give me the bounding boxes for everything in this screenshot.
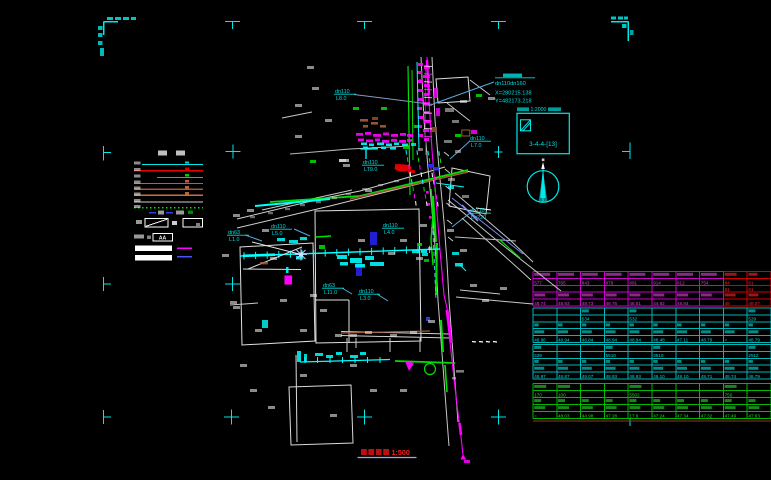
svg-text:48.76: 48.76 bbox=[606, 301, 618, 306]
svg-text:5510: 5510 bbox=[606, 353, 617, 358]
svg-text:dn110dn160: dn110dn160 bbox=[495, 81, 526, 87]
svg-text:48.73: 48.73 bbox=[582, 301, 594, 306]
svg-text:L5.0: L5.0 bbox=[272, 231, 283, 237]
svg-text:48.03: 48.03 bbox=[558, 414, 570, 419]
svg-text:47.49: 47.49 bbox=[725, 414, 737, 419]
svg-text:765: 765 bbox=[558, 280, 566, 285]
svg-text:843: 843 bbox=[582, 280, 590, 285]
svg-text:48.74: 48.74 bbox=[534, 301, 546, 306]
svg-text:48.71: 48.71 bbox=[701, 374, 713, 379]
svg-text:47.63: 47.63 bbox=[748, 414, 760, 419]
svg-text:48.07: 48.07 bbox=[748, 301, 760, 306]
svg-text:48: 48 bbox=[725, 301, 731, 306]
svg-text:=: = bbox=[534, 414, 537, 419]
svg-text:81: 81 bbox=[748, 280, 754, 285]
svg-text:1:2000: 1:2000 bbox=[531, 107, 547, 113]
svg-text:48.97: 48.97 bbox=[534, 374, 546, 379]
svg-text:754: 754 bbox=[701, 280, 709, 285]
svg-text:750: 750 bbox=[725, 392, 733, 397]
svg-text:48.93: 48.93 bbox=[558, 301, 570, 306]
svg-text:812: 812 bbox=[677, 280, 685, 285]
svg-text:48.96: 48.96 bbox=[534, 338, 546, 343]
svg-text:48.93: 48.93 bbox=[606, 374, 618, 379]
svg-text:48.79: 48.79 bbox=[748, 374, 760, 379]
svg-text:44.98: 44.98 bbox=[582, 414, 594, 419]
svg-text:47.34: 47.34 bbox=[677, 414, 689, 419]
svg-text:L8.0: L8.0 bbox=[336, 96, 347, 102]
svg-text:48.87: 48.87 bbox=[558, 374, 570, 379]
svg-text:539: 539 bbox=[534, 353, 542, 358]
svg-text:48.51: 48.51 bbox=[629, 301, 641, 306]
svg-text:47.24: 47.24 bbox=[653, 414, 665, 419]
svg-text:47.32: 47.32 bbox=[701, 414, 713, 419]
svg-text:3-4-4-[13]: 3-4-4-[13] bbox=[529, 141, 557, 148]
svg-text:5502: 5502 bbox=[629, 392, 640, 397]
svg-text:X=280215.138: X=280215.138 bbox=[495, 91, 532, 97]
svg-text:17.9: 17.9 bbox=[629, 414, 638, 419]
svg-text:48.94: 48.94 bbox=[629, 338, 641, 343]
svg-text:914: 914 bbox=[653, 280, 661, 285]
svg-text:170: 170 bbox=[534, 392, 542, 397]
svg-text:LT9.0: LT9.0 bbox=[364, 167, 377, 173]
svg-text:48.93: 48.93 bbox=[629, 374, 641, 379]
svg-text:48.07: 48.07 bbox=[582, 374, 594, 379]
svg-text:529: 529 bbox=[748, 317, 756, 322]
svg-text:84: 84 bbox=[725, 280, 731, 285]
svg-text:48.10: 48.10 bbox=[653, 374, 665, 379]
svg-text:2512: 2512 bbox=[748, 353, 759, 358]
svg-text:48.10: 48.10 bbox=[677, 374, 689, 379]
svg-text:1:500: 1:500 bbox=[392, 448, 410, 457]
svg-text:Y=482173.218: Y=482173.218 bbox=[495, 99, 532, 105]
svg-text:48.94: 48.94 bbox=[558, 338, 570, 343]
svg-text:879: 879 bbox=[606, 280, 614, 285]
svg-text:532: 532 bbox=[629, 317, 637, 322]
svg-text:48.84: 48.84 bbox=[677, 301, 689, 306]
svg-text:891: 891 bbox=[629, 280, 637, 285]
svg-text:L1.0: L1.0 bbox=[229, 237, 240, 243]
svg-text:AA: AA bbox=[159, 236, 167, 242]
svg-text:61: 61 bbox=[748, 287, 754, 292]
svg-text:L11.0: L11.0 bbox=[324, 290, 337, 296]
svg-text:48.48: 48.48 bbox=[653, 338, 665, 343]
svg-text:48.84: 48.84 bbox=[582, 338, 594, 343]
svg-text:51: 51 bbox=[725, 287, 731, 292]
svg-text:47.28: 47.28 bbox=[606, 414, 618, 419]
svg-text:=: = bbox=[725, 338, 728, 343]
svg-text:48.74: 48.74 bbox=[725, 374, 737, 379]
svg-text:L3.0: L3.0 bbox=[360, 296, 371, 302]
svg-text:L4.0: L4.0 bbox=[384, 230, 395, 236]
svg-text:100: 100 bbox=[558, 392, 566, 397]
svg-text:3510: 3510 bbox=[653, 353, 664, 358]
svg-text:48.94: 48.94 bbox=[606, 338, 618, 343]
svg-text:577: 577 bbox=[534, 280, 542, 285]
svg-text:44.92: 44.92 bbox=[653, 301, 665, 306]
svg-text:48.79: 48.79 bbox=[748, 338, 760, 343]
svg-text:48.79: 48.79 bbox=[701, 338, 713, 343]
svg-text:L7.0: L7.0 bbox=[471, 143, 482, 149]
svg-text:534: 534 bbox=[582, 317, 590, 322]
svg-text:47.11: 47.11 bbox=[677, 338, 689, 343]
